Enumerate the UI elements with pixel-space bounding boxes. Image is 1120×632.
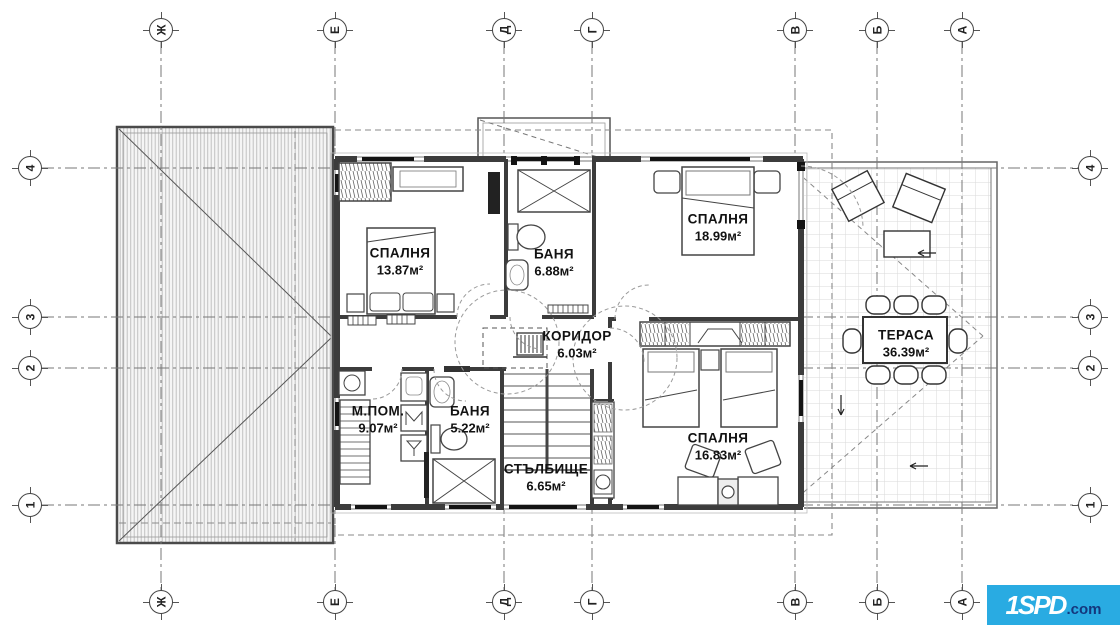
floor-plan-page: Ж Е Д Г В Б А Ж Е Д Г В Б А 4 3 2 1 4 3 …: [0, 0, 1120, 632]
grid-row-marker-right: 1: [1078, 493, 1102, 517]
grid-column-marker-bottom: Е: [323, 590, 347, 614]
grid-column-marker-bottom: Ж: [149, 590, 173, 614]
room-label-terrace: ТЕРАСА 36.39м²: [878, 327, 934, 360]
grid-number: 1: [1084, 502, 1096, 509]
grid-row-marker-left: 2: [18, 356, 42, 380]
roof-plan-left: [117, 127, 333, 543]
grid-letter: Б: [871, 26, 883, 35]
grid-row-marker-right: 4: [1078, 156, 1102, 180]
grid-letter: Е: [329, 598, 341, 606]
grid-letter: Б: [871, 598, 883, 607]
grid-letter: В: [789, 26, 801, 35]
grid-row-marker-right: 3: [1078, 305, 1102, 329]
room-label-staircase: СТЪЛБИЩЕ 6.65м²: [504, 461, 588, 494]
grid-letter: А: [956, 26, 968, 35]
grid-letter: В: [789, 598, 801, 607]
grid-number: 1: [24, 502, 36, 509]
grid-letter: Е: [329, 26, 341, 34]
grid-letter: Ж: [155, 25, 167, 36]
grid-letter: Ж: [155, 597, 167, 608]
room-label-bedroom3: СПАЛНЯ 16.83м²: [688, 430, 749, 463]
grid-number: 3: [24, 314, 36, 321]
room-label-bedroom2: СПАЛНЯ 18.99м²: [688, 211, 749, 244]
grid-number: 3: [1084, 314, 1096, 321]
grid-column-marker-bottom: Д: [492, 590, 516, 614]
grid-column-marker-bottom: А: [950, 590, 974, 614]
grid-letter: Г: [586, 27, 598, 34]
canopy: [478, 118, 610, 162]
room-label-bath1: БАНЯ 6.88м²: [534, 246, 574, 279]
grid-number: 2: [24, 365, 36, 372]
grid-column-marker-top: Е: [323, 18, 347, 42]
grid-row-marker-left: 4: [18, 156, 42, 180]
room-label-utility: М.ПОМ. 9.07м²: [352, 403, 405, 436]
grid-row-marker-left: 1: [18, 493, 42, 517]
hall-closet: [592, 402, 614, 498]
grid-letter: Д: [498, 26, 510, 35]
grid-column-marker-top: Г: [580, 18, 604, 42]
grid-column-marker-bottom: В: [783, 590, 807, 614]
grid-letter: Г: [586, 599, 598, 606]
site-logo: 1SPD .com: [987, 585, 1120, 625]
grid-column-marker-top: Б: [865, 18, 889, 42]
grid-letter: Д: [498, 598, 510, 607]
grid-column-marker-top: В: [783, 18, 807, 42]
grid-number: 4: [1084, 165, 1096, 172]
grid-column-marker-top: Д: [492, 18, 516, 42]
room-label-corridor: КОРИДОР 6.03м²: [542, 328, 611, 361]
grid-row-marker-left: 3: [18, 305, 42, 329]
logo-text: 1SPD: [1006, 592, 1066, 618]
grid-column-marker-top: А: [950, 18, 974, 42]
room-label-bedroom1: СПАЛНЯ 13.87м²: [370, 245, 431, 278]
grid-number: 4: [24, 165, 36, 172]
grid-letter: А: [956, 598, 968, 607]
logo-suffix: .com: [1066, 602, 1101, 617]
grid-column-marker-bottom: Б: [865, 590, 889, 614]
grid-number: 2: [1084, 365, 1096, 372]
grid-row-marker-right: 2: [1078, 356, 1102, 380]
grid-column-marker-top: Ж: [149, 18, 173, 42]
grid-column-marker-bottom: Г: [580, 590, 604, 614]
floor-plan-drawing: [0, 0, 1120, 632]
room-label-bath2: БАНЯ 5.22м²: [450, 403, 490, 436]
